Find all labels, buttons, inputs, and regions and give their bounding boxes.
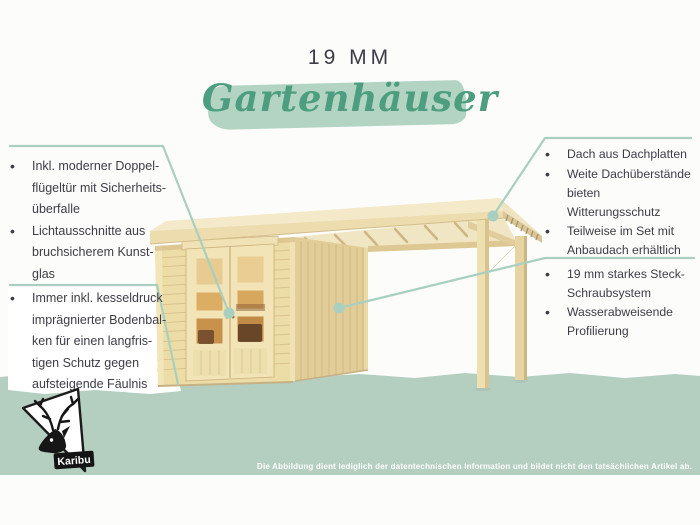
callout-left-bottom: Immer inkl. kesseldruck imprägnierter Bo…: [10, 288, 180, 396]
infographic-page: 19 MM Gartenhäuser Inkl. moderner Doppel…: [0, 0, 700, 525]
double-door: [182, 236, 278, 381]
logo-pennant: [23, 389, 85, 471]
list-item: 19 mm starkes Steck- Schraubsystem: [545, 265, 697, 303]
bullet-icon: [545, 145, 567, 165]
bullet-text: Dach aus Dachplatten: [567, 145, 687, 164]
list-item: Wasserabweisende Profilierung: [545, 303, 697, 341]
bullet-icon: [10, 288, 32, 311]
callout-dot-roof: [488, 211, 499, 222]
bullet-text: Immer inkl. kesseldruck imprägnierter Bo…: [32, 288, 166, 396]
bullet-text: Inkl. moderner Doppel- flügeltür mit Sic…: [32, 156, 166, 221]
bullet-icon: [10, 221, 32, 244]
list-item: Teilweise im Set mit Anbaudach erhältlic…: [545, 222, 697, 260]
bullet-icon: [545, 222, 567, 242]
bullet-icon: [545, 165, 567, 185]
bullet-icon: [545, 265, 567, 285]
callout-left-top: Inkl. moderner Doppel- flügeltür mit Sic…: [10, 156, 180, 285]
shed-walls: [155, 237, 368, 386]
bullet-text: 19 mm starkes Steck- Schraubsystem: [567, 265, 685, 303]
list-item: Inkl. moderner Doppel- flügeltür mit Sic…: [10, 156, 180, 221]
bullet-text: Lichtausschnitte aus bruchsicherem Kunst…: [32, 221, 154, 286]
list-item: Dach aus Dachplatten: [545, 145, 697, 165]
callout-right-top: Dach aus Dachplatten Weite Dachüberständ…: [545, 145, 697, 260]
bullet-text: Weite Dachüberstände bieten Witterungssc…: [567, 165, 697, 222]
callout-dot-wall: [334, 303, 345, 314]
callout-dot-door: [224, 308, 235, 319]
bullet-icon: [545, 303, 567, 323]
roof: [150, 198, 542, 244]
size-heading: 19 MM: [0, 46, 700, 70]
list-item: Immer inkl. kesseldruck imprägnierter Bo…: [10, 288, 180, 396]
callout-right-bottom: 19 mm starkes Steck- Schraubsystem Wasse…: [545, 265, 697, 341]
caribou-icon: [35, 397, 78, 453]
canopy-underside: [295, 216, 517, 250]
bullet-text: Wasserabweisende Profilierung: [567, 303, 673, 341]
bullet-text: Teilweise im Set mit Anbaudach erhältlic…: [567, 222, 681, 260]
disclaimer-text: Die Abbildung dient lediglich der datent…: [0, 462, 692, 471]
bullet-icon: [10, 156, 32, 179]
list-item: Lichtausschnitte aus bruchsicherem Kunst…: [10, 221, 180, 286]
page-title: Gartenhäuser: [0, 76, 700, 120]
list-item: Weite Dachüberstände bieten Witterungssc…: [545, 165, 697, 222]
canopy-posts: [368, 214, 528, 391]
